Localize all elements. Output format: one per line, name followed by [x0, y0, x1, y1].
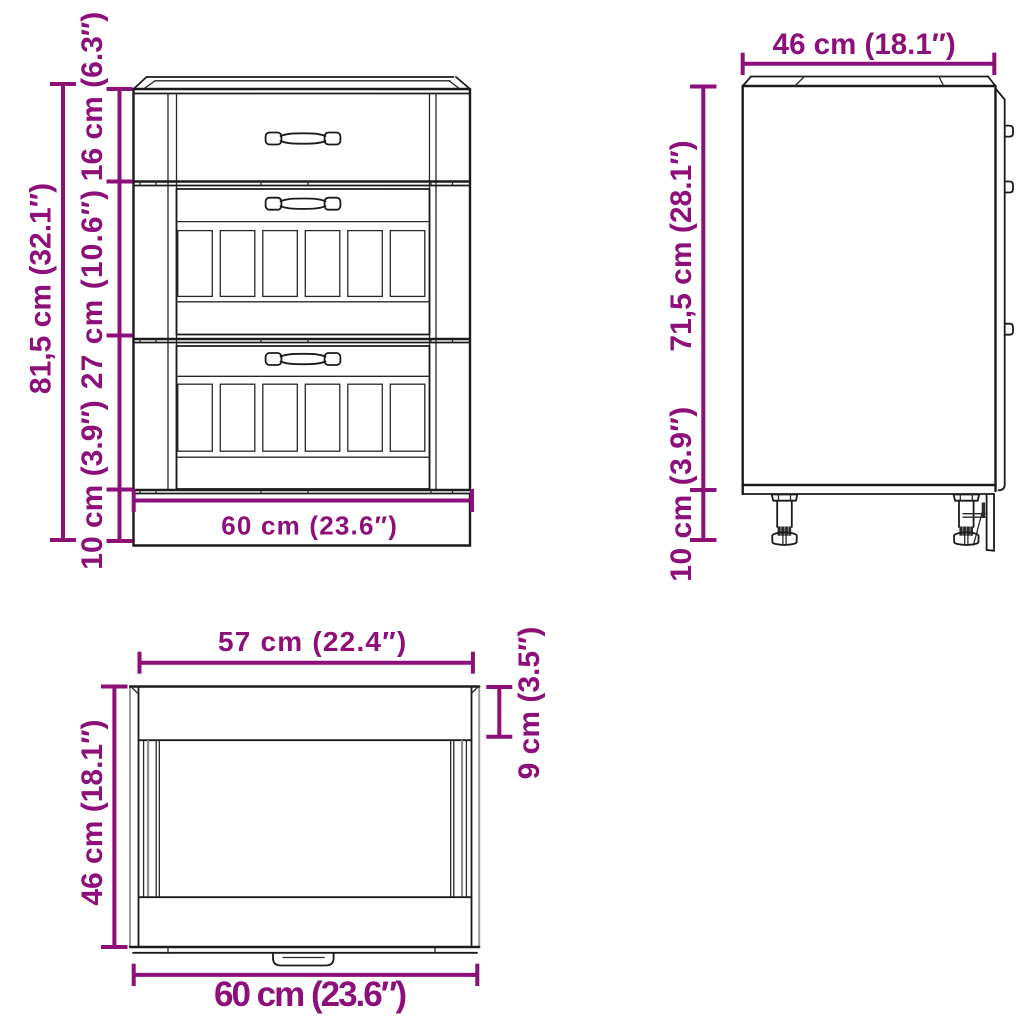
svg-text:46 cm (18.1″): 46 cm (18.1″) — [773, 28, 956, 61]
svg-text:9 cm (3.5″): 9 cm (3.5″) — [513, 627, 546, 780]
svg-text:46 cm (18.1″): 46 cm (18.1″) — [76, 720, 109, 906]
svg-text:71,5 cm (28.1″): 71,5 cm (28.1″) — [665, 140, 698, 351]
svg-text:60 cm (23.6″): 60 cm (23.6″) — [214, 975, 406, 1014]
svg-text:60 cm (23.6″): 60 cm (23.6″) — [221, 511, 398, 541]
svg-text:10 cm (3.9″): 10 cm (3.9″) — [665, 406, 698, 581]
svg-text:16 cm (6.3″): 16 cm (6.3″) — [76, 12, 109, 181]
svg-text:81,5 cm (32.1″): 81,5 cm (32.1″) — [25, 183, 58, 394]
svg-text:57 cm (22.4″): 57 cm (22.4″) — [218, 626, 407, 657]
svg-text:27 cm (10.6″): 27 cm (10.6″) — [76, 189, 109, 389]
svg-text:10 cm (3.9″): 10 cm (3.9″) — [76, 400, 109, 569]
